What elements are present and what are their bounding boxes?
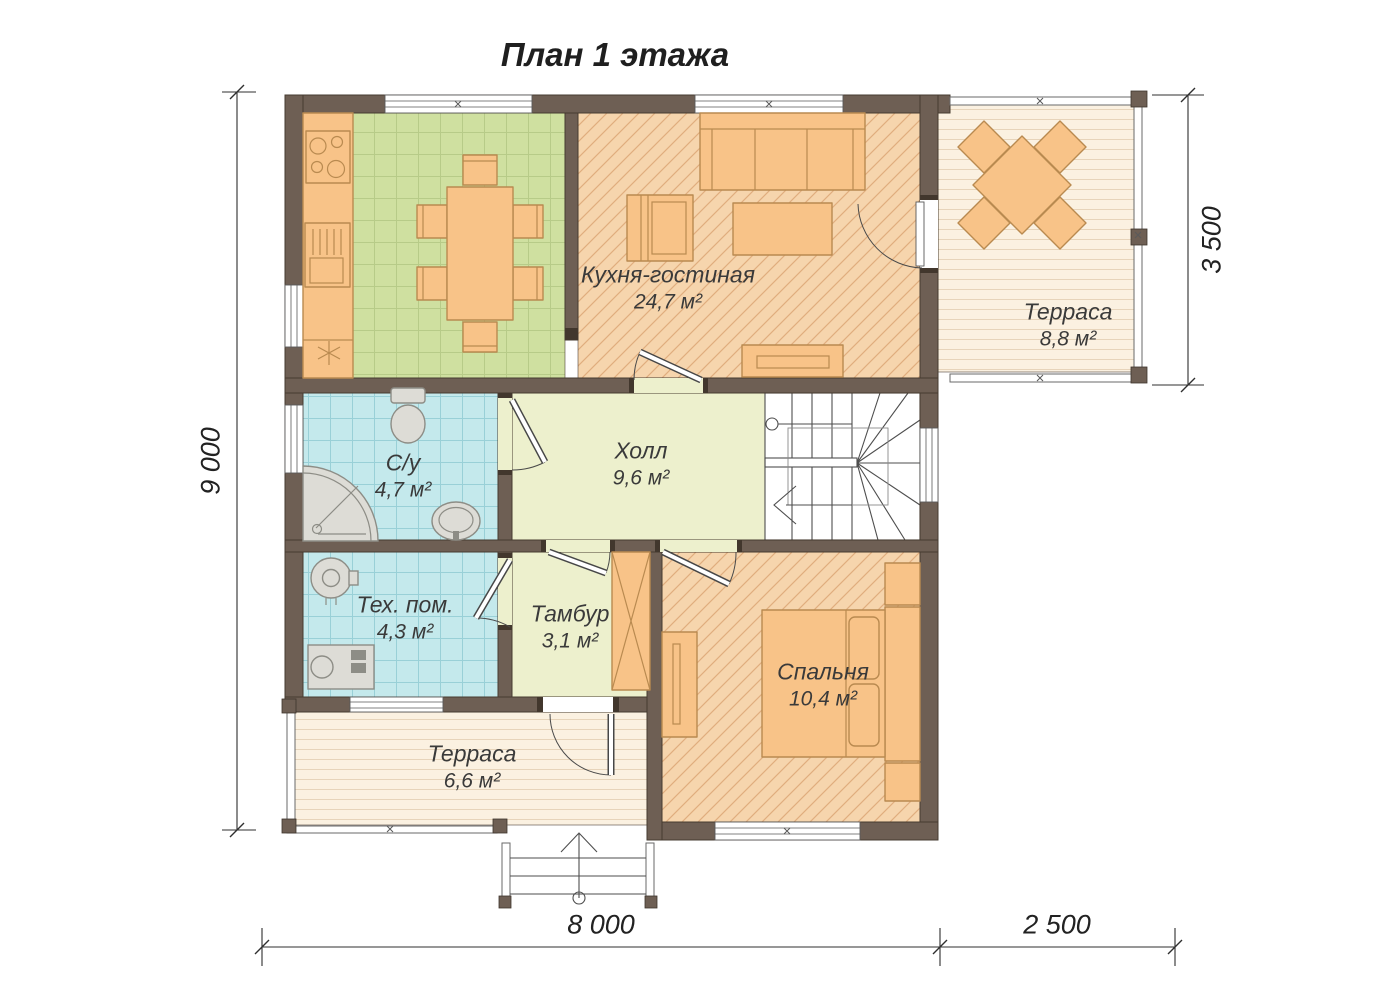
dimension-label-width-terrace: 2 500: [1023, 910, 1091, 941]
dining-chair: [513, 267, 543, 300]
headboard: [885, 607, 920, 761]
porch-up-arrow: [561, 833, 597, 898]
terrace-post: [493, 819, 507, 833]
terrace-post: [1131, 91, 1147, 107]
room-name: С/у: [375, 449, 431, 478]
coffee-table: [733, 203, 832, 255]
dining-chair: [513, 205, 543, 238]
toilet: [391, 388, 425, 443]
room-label-bedroom: Спальня 10,4 м²: [777, 658, 869, 713]
room-name: Тех. пом.: [357, 591, 454, 620]
terrace-post: [282, 819, 296, 833]
dining-table: [447, 187, 513, 320]
room-area: 9,6 м²: [613, 465, 669, 491]
tv-stand: [742, 345, 843, 377]
nightstand: [885, 563, 920, 605]
dining-chair: [463, 322, 497, 352]
wall-kitchen-divider: [565, 113, 578, 340]
window-bedroom-bottom: [715, 822, 860, 840]
closet: [612, 552, 650, 690]
washing-machine: [308, 645, 374, 689]
wall-mid-upper: [285, 378, 938, 393]
window-living-top: [695, 95, 843, 113]
room-label-bathroom: С/у 4,7 м²: [375, 449, 431, 504]
dining-chair: [417, 267, 447, 300]
outdoor-dining-set: [958, 121, 1086, 249]
dimension-label-terrace-height: 3 500: [1197, 206, 1228, 274]
dimension-label-width-main: 8 000: [567, 910, 635, 941]
sofa: [700, 113, 865, 190]
room-area: 24,7 м²: [581, 289, 755, 315]
dimension-label-height: 9 000: [196, 427, 227, 495]
wardrobe: [662, 632, 697, 737]
room-label-kitchen-living: Кухня-гостиная 24,7 м²: [581, 261, 755, 316]
floor-plan-drawing: [0, 0, 1400, 995]
room-area: 4,7 м²: [375, 477, 431, 503]
entrance-steps: [499, 833, 657, 908]
room-name: Кухня-гостиная: [581, 261, 755, 290]
room-name: Терраса: [428, 740, 517, 769]
room-area: 6,6 м²: [428, 768, 517, 794]
room-label-hall: Холл 9,6 м²: [613, 437, 669, 492]
armchair: [627, 195, 693, 261]
window-stairs-right: [920, 428, 938, 502]
room-label-terrace-bottom: Терраса 6,6 м²: [428, 740, 517, 795]
room-name: Холл: [613, 437, 669, 466]
page-title: План 1 этажа: [501, 36, 729, 74]
room-area: 4,3 м²: [357, 619, 454, 645]
dining-chair: [417, 205, 447, 238]
nightstand: [885, 763, 920, 801]
wall-left: [285, 95, 303, 712]
room-label-tech-room: Тех. пом. 4,3 м²: [357, 591, 454, 646]
window-kitchen-left: [285, 285, 303, 347]
stove: [306, 131, 350, 183]
room-name: Терраса: [1024, 298, 1113, 327]
room-label-terrace-top: Терраса 8,8 м²: [1024, 298, 1113, 353]
sink: [432, 502, 480, 540]
room-name: Спальня: [777, 658, 869, 687]
terrace-post: [1131, 367, 1147, 383]
kitchen-counter: [303, 113, 353, 378]
window-kitchen-top: [385, 95, 532, 113]
room-label-vestibule: Тамбур 3,1 м²: [531, 600, 610, 655]
terrace-post: [1131, 229, 1147, 245]
dimension-left: [222, 85, 256, 837]
room-area: 3,1 м²: [531, 628, 610, 654]
terrace-post: [282, 699, 296, 713]
room-name: Тамбур: [531, 600, 610, 629]
window-tech-bottom: [350, 697, 443, 712]
room-area: 10,4 м²: [777, 686, 869, 712]
window-bathroom-left: [285, 405, 303, 473]
dining-chair: [463, 155, 497, 185]
room-area: 8,8 м²: [1024, 326, 1113, 352]
